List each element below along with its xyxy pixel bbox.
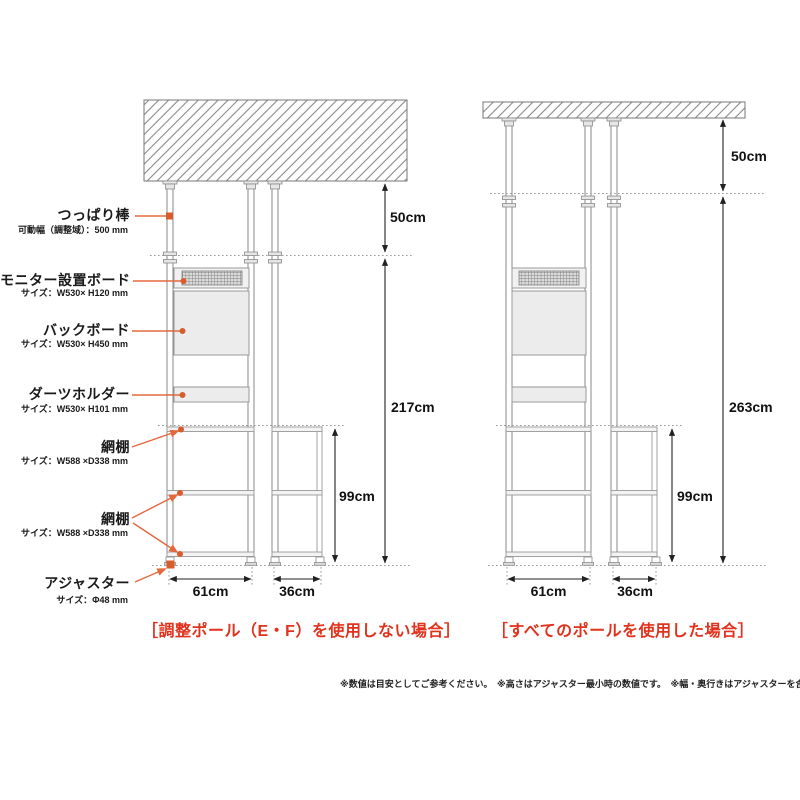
part-spec-darts-holder: サイズ：W530× H101 mm bbox=[0, 404, 128, 414]
shelf-frame-side bbox=[272, 427, 322, 557]
left-diagram bbox=[132, 100, 412, 586]
shelf-frame-main bbox=[506, 427, 591, 557]
adjuster-feet bbox=[165, 557, 326, 565]
dim-ceiling-gap-right: 50cm bbox=[731, 149, 767, 164]
spec-sheet: つっぱり棒 可動幅（調整域）：500 mm モニター設置ボード サイズ：W530… bbox=[0, 0, 800, 800]
ceiling-beam bbox=[144, 100, 407, 181]
dim-shelf-height-left: 99cm bbox=[339, 489, 375, 504]
dim-total-height-right: 263cm bbox=[729, 400, 773, 415]
part-spec-monitor-board: サイズ：W530× H120 mm bbox=[0, 288, 128, 298]
dim-shelf-height-right: 99cm bbox=[677, 489, 713, 504]
part-spec-mesh-shelf-lower: サイズ：W588 ×D338 mm bbox=[0, 528, 128, 538]
right-diagram bbox=[483, 102, 768, 586]
part-label-mesh-shelf-lower: 網棚 bbox=[0, 512, 130, 527]
part-spec-tension-rod: 可動幅（調整域）：500 mm bbox=[0, 225, 128, 235]
part-spec-adjuster: サイズ：Φ48 mm bbox=[0, 595, 128, 605]
dim-ceiling-gap-left: 50cm bbox=[390, 210, 426, 225]
caption-left-view: ［調整ポール（E・F）を使用しない場合］ bbox=[142, 621, 438, 643]
ceiling-slab bbox=[483, 102, 745, 118]
back-board bbox=[174, 291, 249, 355]
part-label-darts-holder: ダーツホルダー bbox=[0, 387, 130, 402]
pole-joint-fittings bbox=[164, 252, 282, 263]
dim-side-width-left: 36cm bbox=[272, 584, 322, 599]
dim-total-height-left: 217cm bbox=[391, 400, 435, 415]
shelf-frame-side bbox=[611, 427, 657, 557]
part-spec-mesh-shelf-upper: サイズ：W588 ×D338 mm bbox=[0, 456, 128, 466]
part-label-back-board: バックボード bbox=[0, 323, 130, 338]
pole-joint-fittings bbox=[503, 196, 621, 207]
part-spec-back-board: サイズ：W530× H450 mm bbox=[0, 339, 128, 349]
part-label-adjuster: アジャスター bbox=[0, 576, 130, 591]
back-board bbox=[512, 291, 586, 355]
dim-side-width-right: 36cm bbox=[611, 584, 659, 599]
tension-poles bbox=[167, 181, 278, 565]
pole-top-caps bbox=[502, 118, 621, 126]
part-label-mesh-shelf-upper: 網棚 bbox=[0, 440, 130, 455]
adjuster-feet bbox=[504, 557, 662, 565]
monitor-mesh-panel bbox=[519, 271, 579, 285]
caption-right-view: ［すべてのポールを使用した場合］ bbox=[477, 621, 769, 643]
monitor-mesh-panel bbox=[182, 271, 242, 285]
pole-top-caps bbox=[163, 181, 282, 189]
dim-main-width-left: 61cm bbox=[169, 584, 252, 599]
footnote: ※数値は目安としてご参考ください。 ※高さはアジャスター最小時の数値です。 ※幅… bbox=[340, 679, 778, 690]
part-label-tension-rod: つっぱり棒 bbox=[0, 208, 130, 223]
part-label-monitor-board: モニター設置ボード bbox=[0, 273, 130, 288]
dim-main-width-right: 61cm bbox=[506, 584, 591, 599]
darts-holder bbox=[512, 387, 586, 402]
